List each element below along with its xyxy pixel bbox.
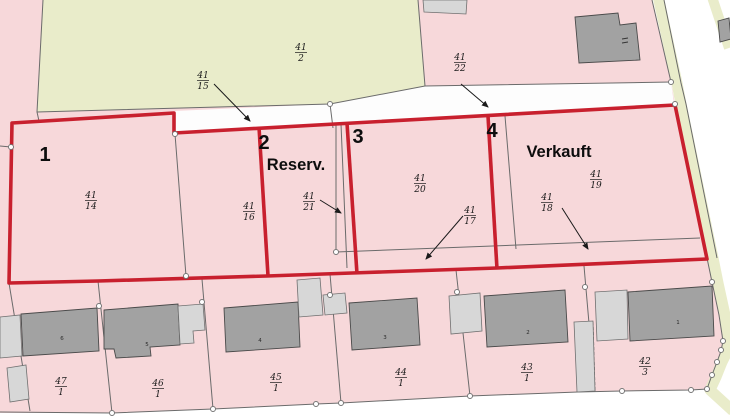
house-1 — [628, 286, 714, 341]
building-top-small — [423, 0, 467, 14]
svg-text:45: 45 — [269, 373, 282, 383]
cadastral-map: 1 2 3 4 Reserv. Verkauft 412 4115 4122 4… — [0, 0, 730, 420]
svg-text:2: 2 — [297, 54, 304, 64]
svg-text:1: 1 — [58, 388, 64, 398]
house-6 — [21, 308, 99, 356]
parcel-label-41-21: 4121 — [302, 192, 315, 213]
svg-text:41: 41 — [196, 71, 208, 81]
svg-text:41: 41 — [463, 206, 475, 216]
svg-text:41: 41 — [302, 192, 314, 202]
svg-text:1: 1 — [155, 390, 161, 400]
parcel-label-41-22: 4122 — [453, 53, 466, 74]
house-6-number: 6 — [60, 336, 64, 342]
house-4 — [224, 302, 300, 352]
svg-text:1: 1 — [273, 384, 279, 394]
house-3 — [349, 298, 420, 350]
svg-text:44: 44 — [394, 368, 407, 378]
svg-text:41: 41 — [242, 202, 254, 212]
house-3-number: 3 — [383, 335, 387, 341]
plot-1-number: 1 — [39, 144, 50, 166]
parcel-label-41-18: 4118 — [540, 193, 553, 214]
svg-text:16: 16 — [243, 213, 255, 223]
svg-text:42: 42 — [638, 357, 651, 367]
parcel-label-41-16: 4116 — [242, 202, 255, 223]
annex-house2-left — [449, 293, 482, 334]
svg-text:41: 41 — [453, 53, 465, 63]
house-1-number: 1 — [676, 320, 680, 326]
svg-text:22: 22 — [453, 64, 466, 74]
svg-text:41: 41 — [294, 43, 306, 53]
map-canvas: 1 2 3 4 Reserv. Verkauft 412 4115 4122 4… — [0, 0, 730, 420]
parcel-label-41-14: 4114 — [84, 191, 97, 212]
building-across-road — [718, 18, 730, 42]
parcel-label-41-19: 4119 — [589, 170, 602, 191]
house-2 — [484, 290, 568, 347]
plot-3-number: 3 — [352, 126, 363, 148]
parcel-label-41-20: 4120 — [413, 174, 426, 195]
driveway-strip — [574, 321, 595, 392]
svg-text:46: 46 — [151, 379, 164, 389]
svg-text:17: 17 — [464, 217, 476, 227]
svg-text:43: 43 — [520, 363, 533, 373]
house-4-number: 4 — [258, 338, 262, 344]
svg-text:20: 20 — [413, 185, 426, 195]
annex-house1-left — [595, 290, 628, 341]
svg-text:21: 21 — [302, 203, 314, 213]
shed-47-1 — [7, 365, 29, 402]
svg-text:41: 41 — [540, 193, 552, 203]
field-parcel-41-2 — [37, 0, 425, 112]
svg-text:19: 19 — [590, 181, 602, 191]
plot-area-1 — [9, 113, 268, 283]
parcel-label-41-17: 4117 — [463, 206, 476, 227]
svg-text:41: 41 — [589, 170, 601, 180]
svg-text:18: 18 — [541, 204, 553, 214]
annex-left-of-house6 — [0, 315, 22, 358]
svg-text:14: 14 — [85, 202, 97, 212]
svg-text:1: 1 — [524, 374, 530, 384]
svg-text:47: 47 — [54, 377, 67, 387]
svg-text:15: 15 — [197, 82, 209, 92]
plot-4-number: 4 — [486, 120, 498, 142]
plot-4-status-sold: Verkauft — [526, 143, 592, 161]
svg-text:41: 41 — [413, 174, 425, 184]
annex-house4-a — [297, 278, 323, 317]
svg-text:41: 41 — [84, 191, 96, 201]
parcel-label-41-15: 4115 — [196, 71, 209, 92]
annex-house4-b — [323, 293, 347, 315]
svg-text:3: 3 — [642, 368, 648, 378]
house-2-number: 2 — [526, 330, 530, 336]
plot-2-status-reserved: Reserv. — [267, 156, 325, 174]
plot-2-number: 2 — [258, 132, 269, 154]
house-5-number: 5 — [145, 342, 149, 348]
svg-text:1: 1 — [398, 379, 404, 389]
